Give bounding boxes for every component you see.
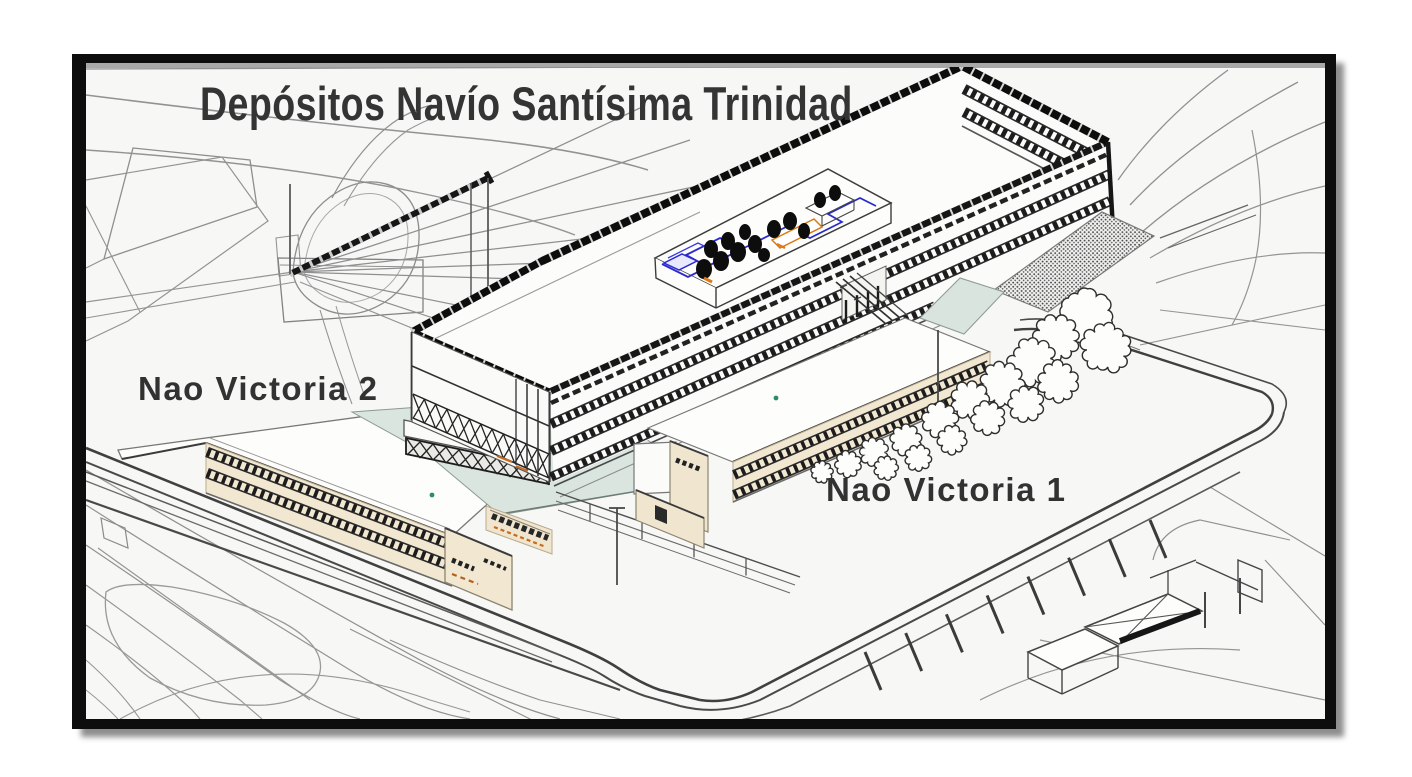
svg-text:Nao Victoria 1: Nao Victoria 1 (826, 471, 1066, 508)
svg-text:Depósitos Navío Santísima Trin: Depósitos Navío Santísima Trinidad (200, 78, 853, 131)
svg-text:Nao Victoria 2: Nao Victoria 2 (138, 370, 378, 407)
